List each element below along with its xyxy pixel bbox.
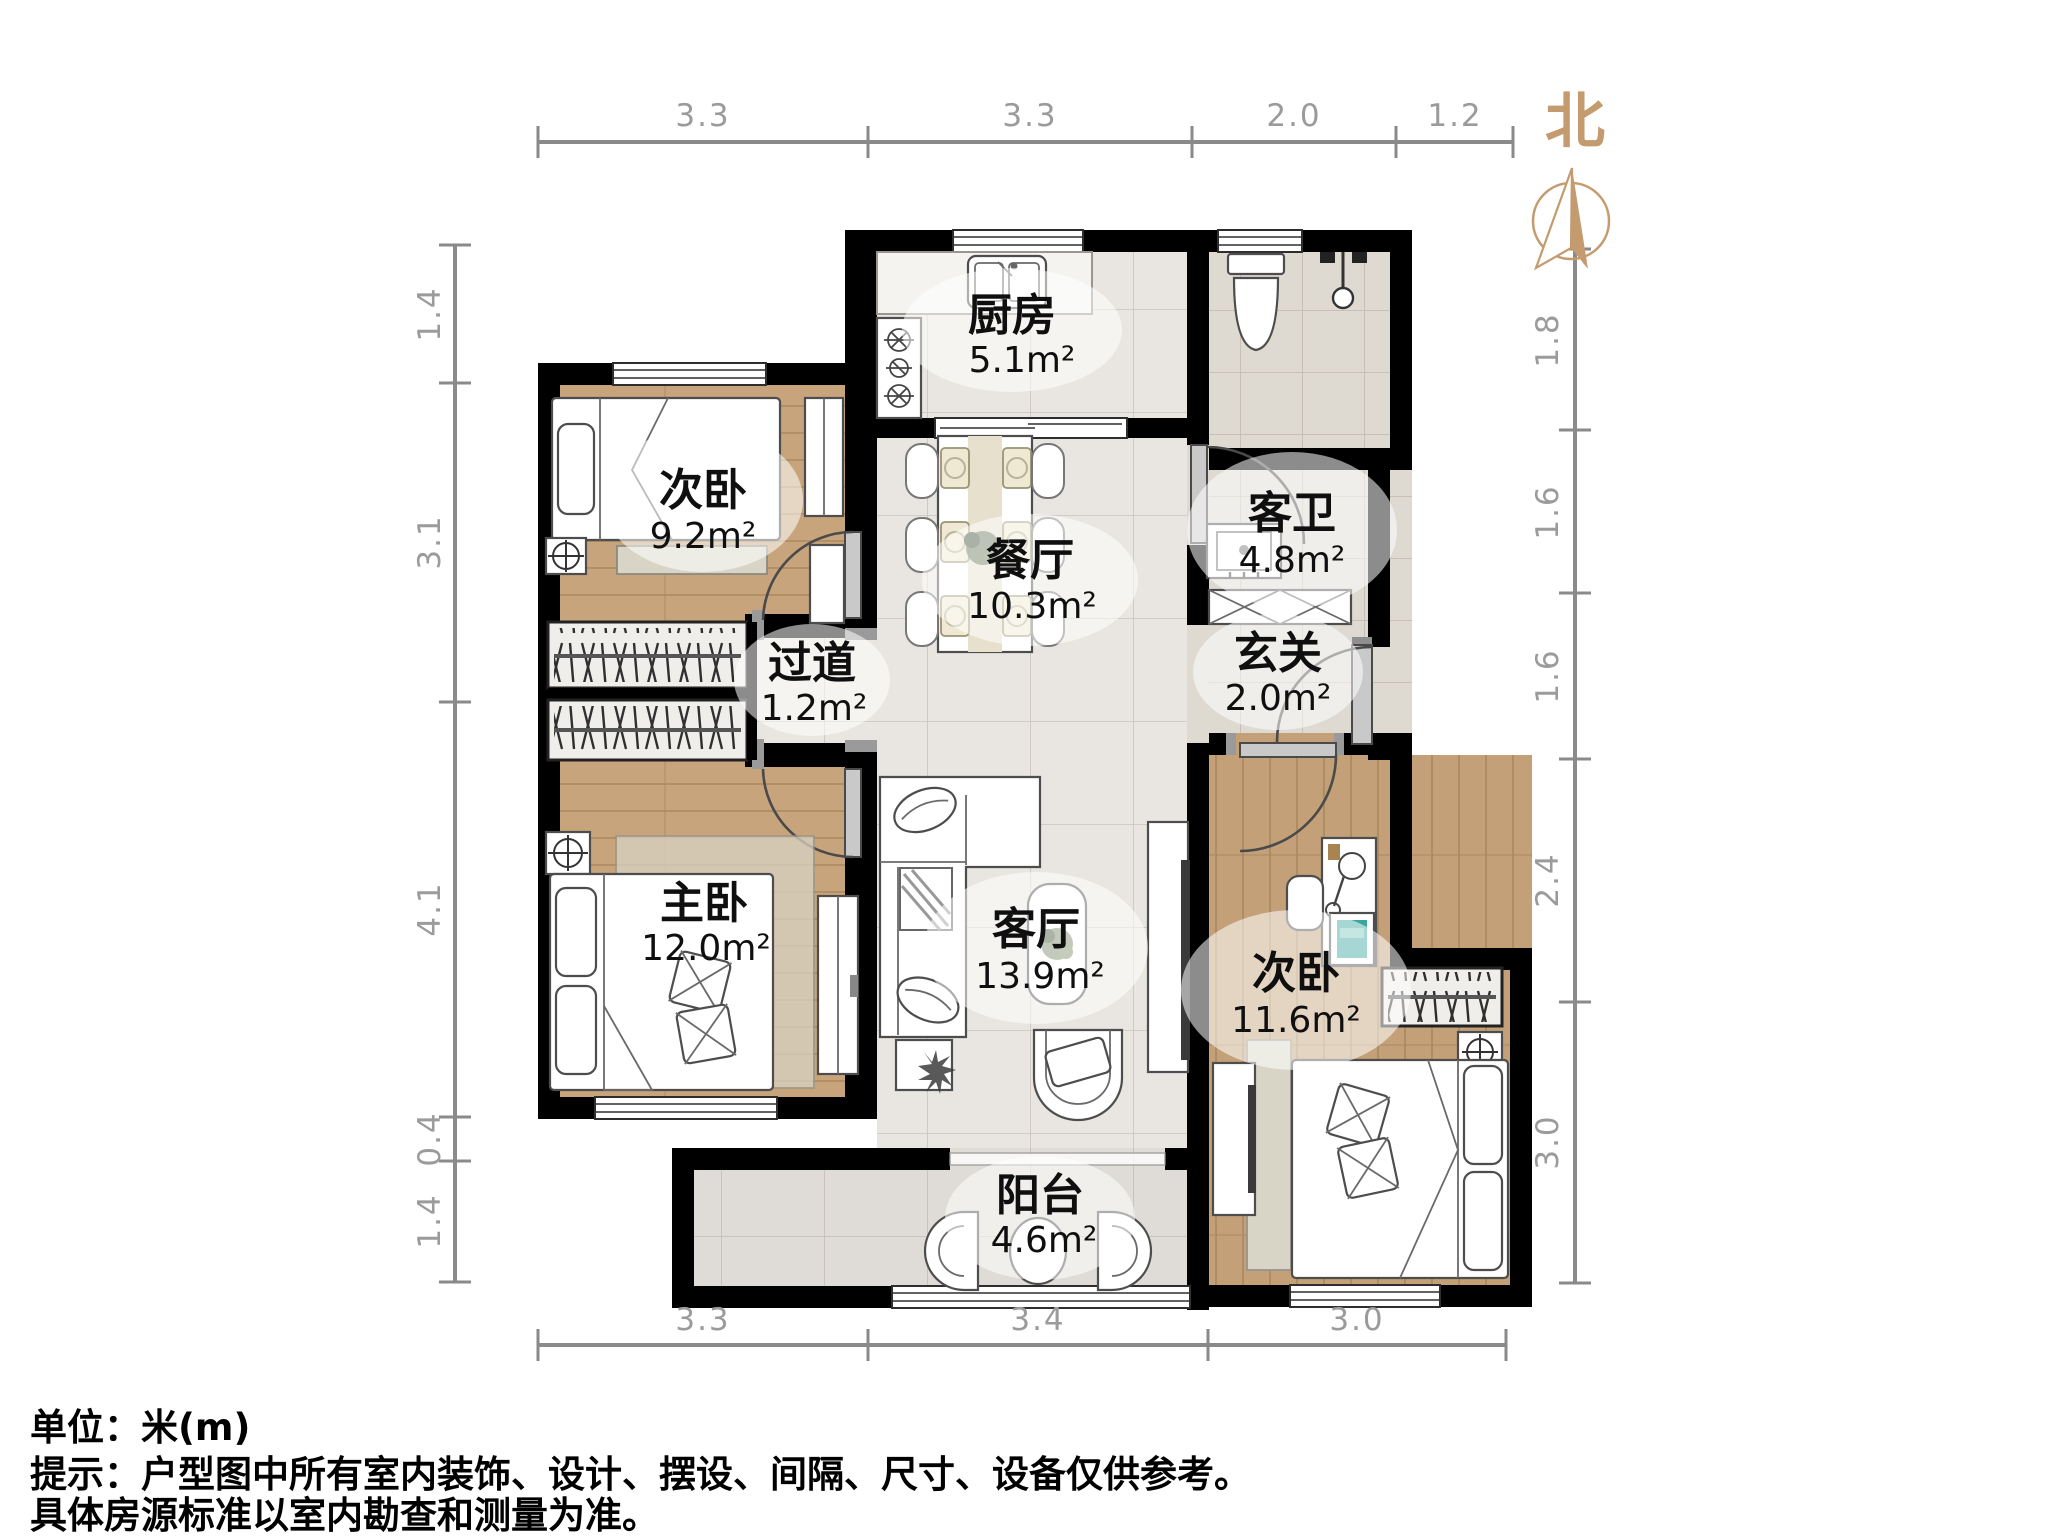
dim-top-3: 1.2 (1427, 98, 1482, 134)
closet-lower (548, 700, 747, 760)
label-bath-area: 4.8m² (1239, 540, 1346, 581)
door-jamb (1226, 733, 1236, 755)
dim-left-3: 0.4 (412, 1111, 448, 1166)
tv-console-living (1148, 822, 1190, 1072)
label-balcony-area: 4.6m² (991, 1220, 1098, 1261)
armchair (1034, 1030, 1122, 1120)
north-compass: 北 (1533, 87, 1609, 269)
label-entry-name: 玄关 (1234, 628, 1322, 679)
dim-left-4: 1.4 (412, 1193, 448, 1248)
dim-left-2: 4.1 (412, 881, 448, 936)
dim-top-2: 2.0 (1266, 98, 1321, 134)
bed-right-bedroom (1292, 1060, 1508, 1278)
note-standard: 具体房源标准以室内勘查和测量为准。 (30, 1494, 659, 1537)
dim-right-0: 1.8 (1530, 312, 1566, 367)
dimension-left: 1.4 3.1 4.1 0.4 1.4 (412, 245, 471, 1282)
label-hallway-area: 1.2m² (761, 688, 868, 729)
label-kitchen-area: 5.1m² (969, 340, 1076, 381)
dim-top-0: 3.3 (675, 98, 730, 134)
dim-right-2: 1.6 (1530, 648, 1566, 703)
label-master-name: 主卧 (660, 878, 748, 929)
dim-right-1: 1.6 (1530, 484, 1566, 539)
note-unit: 单位：米(m) (30, 1406, 250, 1449)
label-master-area: 12.0m² (641, 928, 771, 969)
label-bedroom-right-name: 次卧 (1252, 948, 1340, 999)
dim-bottom-2: 3.0 (1329, 1302, 1384, 1338)
label-bedroom-right-area: 11.6m² (1231, 1000, 1361, 1041)
side-table-flower (896, 1040, 956, 1094)
floor-plan-page: 次卧 9.2m² 厨房 5.1m² 客卫 4.8m² 餐厅 10.3m² 过道 … (0, 0, 2049, 1537)
closet-divider (548, 688, 747, 700)
dresser-top-bedroom (810, 545, 844, 623)
label-hallway-name: 过道 (768, 638, 856, 689)
dim-top-1: 3.3 (1002, 98, 1057, 134)
lamp-master (546, 832, 590, 874)
label-dining-name: 餐厅 (986, 535, 1074, 586)
label-balcony-name: 阳台 (996, 1170, 1084, 1221)
wardrobe-master (818, 896, 858, 1074)
dimension-top: 3.3 3.3 2.0 1.2 (538, 98, 1513, 158)
closet-upper (548, 622, 747, 688)
label-living-name: 客厅 (992, 904, 1080, 955)
north-label: 北 (1545, 87, 1605, 157)
compass-needle-outline (1536, 168, 1572, 268)
floor-plan-canvas: 次卧 9.2m² 厨房 5.1m² 客卫 4.8m² 餐厅 10.3m² 过道 … (0, 0, 2049, 1537)
label-bedroom-top-area: 9.2m² (650, 516, 757, 557)
nightstand-lamp-top-bedroom (546, 538, 586, 574)
window-kitchen (953, 230, 1083, 252)
dim-left-1: 3.1 (412, 514, 448, 569)
dimension-bottom: 3.3 3.4 3.0 (538, 1302, 1506, 1361)
label-entry-area: 2.0m² (1225, 678, 1332, 719)
label-living-area: 13.9m² (975, 956, 1105, 997)
label-bath-name: 客卫 (1248, 488, 1336, 539)
tv-console-right-bedroom (1213, 1063, 1256, 1215)
window-bedroom-top (613, 363, 766, 385)
label-dining-area: 10.3m² (967, 586, 1097, 627)
window-bath (1218, 230, 1302, 252)
dim-bottom-1: 3.4 (1010, 1302, 1065, 1338)
wardrobe-top-bedroom (805, 398, 843, 516)
dim-right-3: 2.4 (1530, 852, 1566, 907)
door-jamb (845, 740, 877, 752)
note-disclaimer: 提示：户型图中所有室内装饰、设计、摆设、间隔、尺寸、设备仅供参考。 (30, 1453, 1251, 1496)
dimension-right: 1.8 1.6 1.6 2.4 3.0 (1530, 249, 1591, 1283)
dim-left-0: 1.4 (412, 286, 448, 341)
label-kitchen-name: 厨房 (968, 290, 1056, 341)
footer-notes: 单位：米(m) 提示：户型图中所有室内装饰、设计、摆设、间隔、尺寸、设备仅供参考… (30, 1406, 1251, 1537)
label-bedroom-top-name: 次卧 (659, 465, 747, 516)
dim-bottom-0: 3.3 (675, 1302, 730, 1338)
dim-right-4: 3.0 (1530, 1114, 1566, 1169)
window-master (595, 1097, 777, 1119)
